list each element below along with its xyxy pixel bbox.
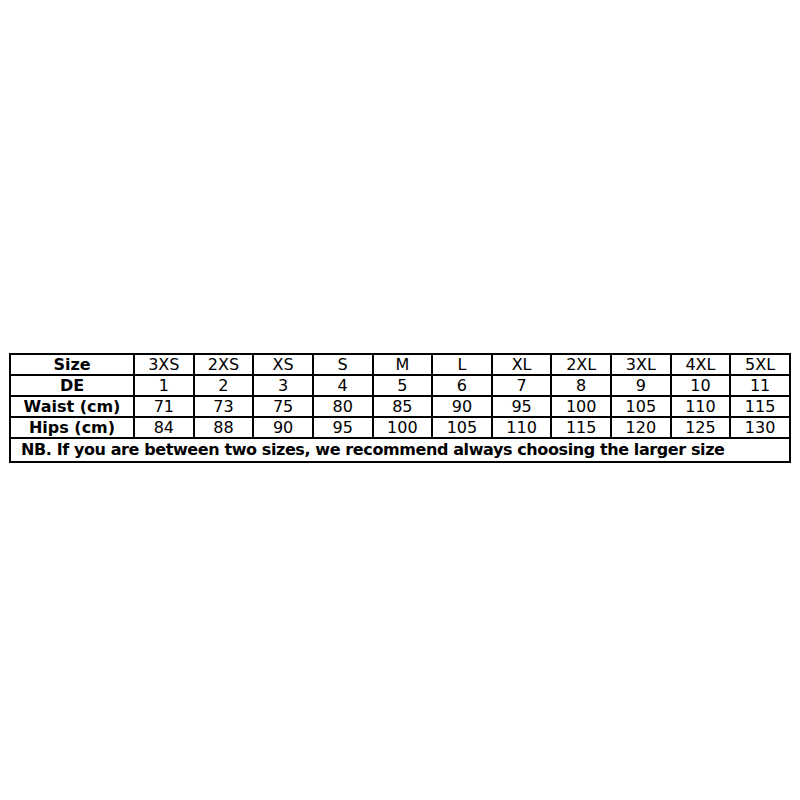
value-cell: 85 <box>373 396 433 417</box>
value-cell: 4 <box>313 375 373 396</box>
value-cell: 100 <box>551 396 611 417</box>
value-cell: 10 <box>671 375 731 396</box>
table-row: Hips (cm)84889095100105110115120125130 <box>10 417 790 438</box>
value-cell: 110 <box>492 417 552 438</box>
value-cell: 5 <box>373 375 433 396</box>
value-cell: 80 <box>313 396 373 417</box>
value-cell: 105 <box>611 396 671 417</box>
header-size-value: M <box>373 354 433 375</box>
value-cell: 73 <box>194 396 254 417</box>
header-size-value: S <box>313 354 373 375</box>
header-size-value: 3XL <box>611 354 671 375</box>
value-cell: 3 <box>253 375 313 396</box>
value-cell: 120 <box>611 417 671 438</box>
header-size-label: Size <box>10 354 134 375</box>
table-row: Waist (cm)71737580859095100105110115 <box>10 396 790 417</box>
note-row: NB. If you are between two sizes, we rec… <box>10 438 790 462</box>
value-cell: 90 <box>432 396 492 417</box>
size-chart-image: Size3XS2XSXSSMLXL2XL3XL4XL5XL DE12345678… <box>0 0 800 800</box>
value-cell: 88 <box>194 417 254 438</box>
value-cell: 7 <box>492 375 552 396</box>
row-label: DE <box>10 375 134 396</box>
value-cell: 71 <box>134 396 194 417</box>
header-size-value: 5XL <box>730 354 790 375</box>
value-cell: 125 <box>671 417 731 438</box>
value-cell: 95 <box>492 396 552 417</box>
table-row: DE1234567891011 <box>10 375 790 396</box>
value-cell: 75 <box>253 396 313 417</box>
value-cell: 110 <box>671 396 731 417</box>
value-cell: 2 <box>194 375 254 396</box>
header-size-value: L <box>432 354 492 375</box>
header-size-value: 2XL <box>551 354 611 375</box>
header-size-value: XS <box>253 354 313 375</box>
value-cell: 8 <box>551 375 611 396</box>
value-cell: 100 <box>373 417 433 438</box>
value-cell: 6 <box>432 375 492 396</box>
row-label: Waist (cm) <box>10 396 134 417</box>
row-label: Hips (cm) <box>10 417 134 438</box>
value-cell: 105 <box>432 417 492 438</box>
value-cell: 115 <box>551 417 611 438</box>
header-size-value: XL <box>492 354 552 375</box>
note-cell: NB. If you are between two sizes, we rec… <box>10 438 790 462</box>
header-size-value: 4XL <box>671 354 731 375</box>
value-cell: 115 <box>730 396 790 417</box>
header-size-value: 2XS <box>194 354 254 375</box>
value-cell: 9 <box>611 375 671 396</box>
value-cell: 11 <box>730 375 790 396</box>
size-header-row: Size3XS2XSXSSMLXL2XL3XL4XL5XL <box>10 354 790 375</box>
value-cell: 95 <box>313 417 373 438</box>
value-cell: 130 <box>730 417 790 438</box>
header-size-value: 3XS <box>134 354 194 375</box>
value-cell: 84 <box>134 417 194 438</box>
value-cell: 1 <box>134 375 194 396</box>
value-cell: 90 <box>253 417 313 438</box>
size-table: Size3XS2XSXSSMLXL2XL3XL4XL5XL DE12345678… <box>9 353 791 463</box>
